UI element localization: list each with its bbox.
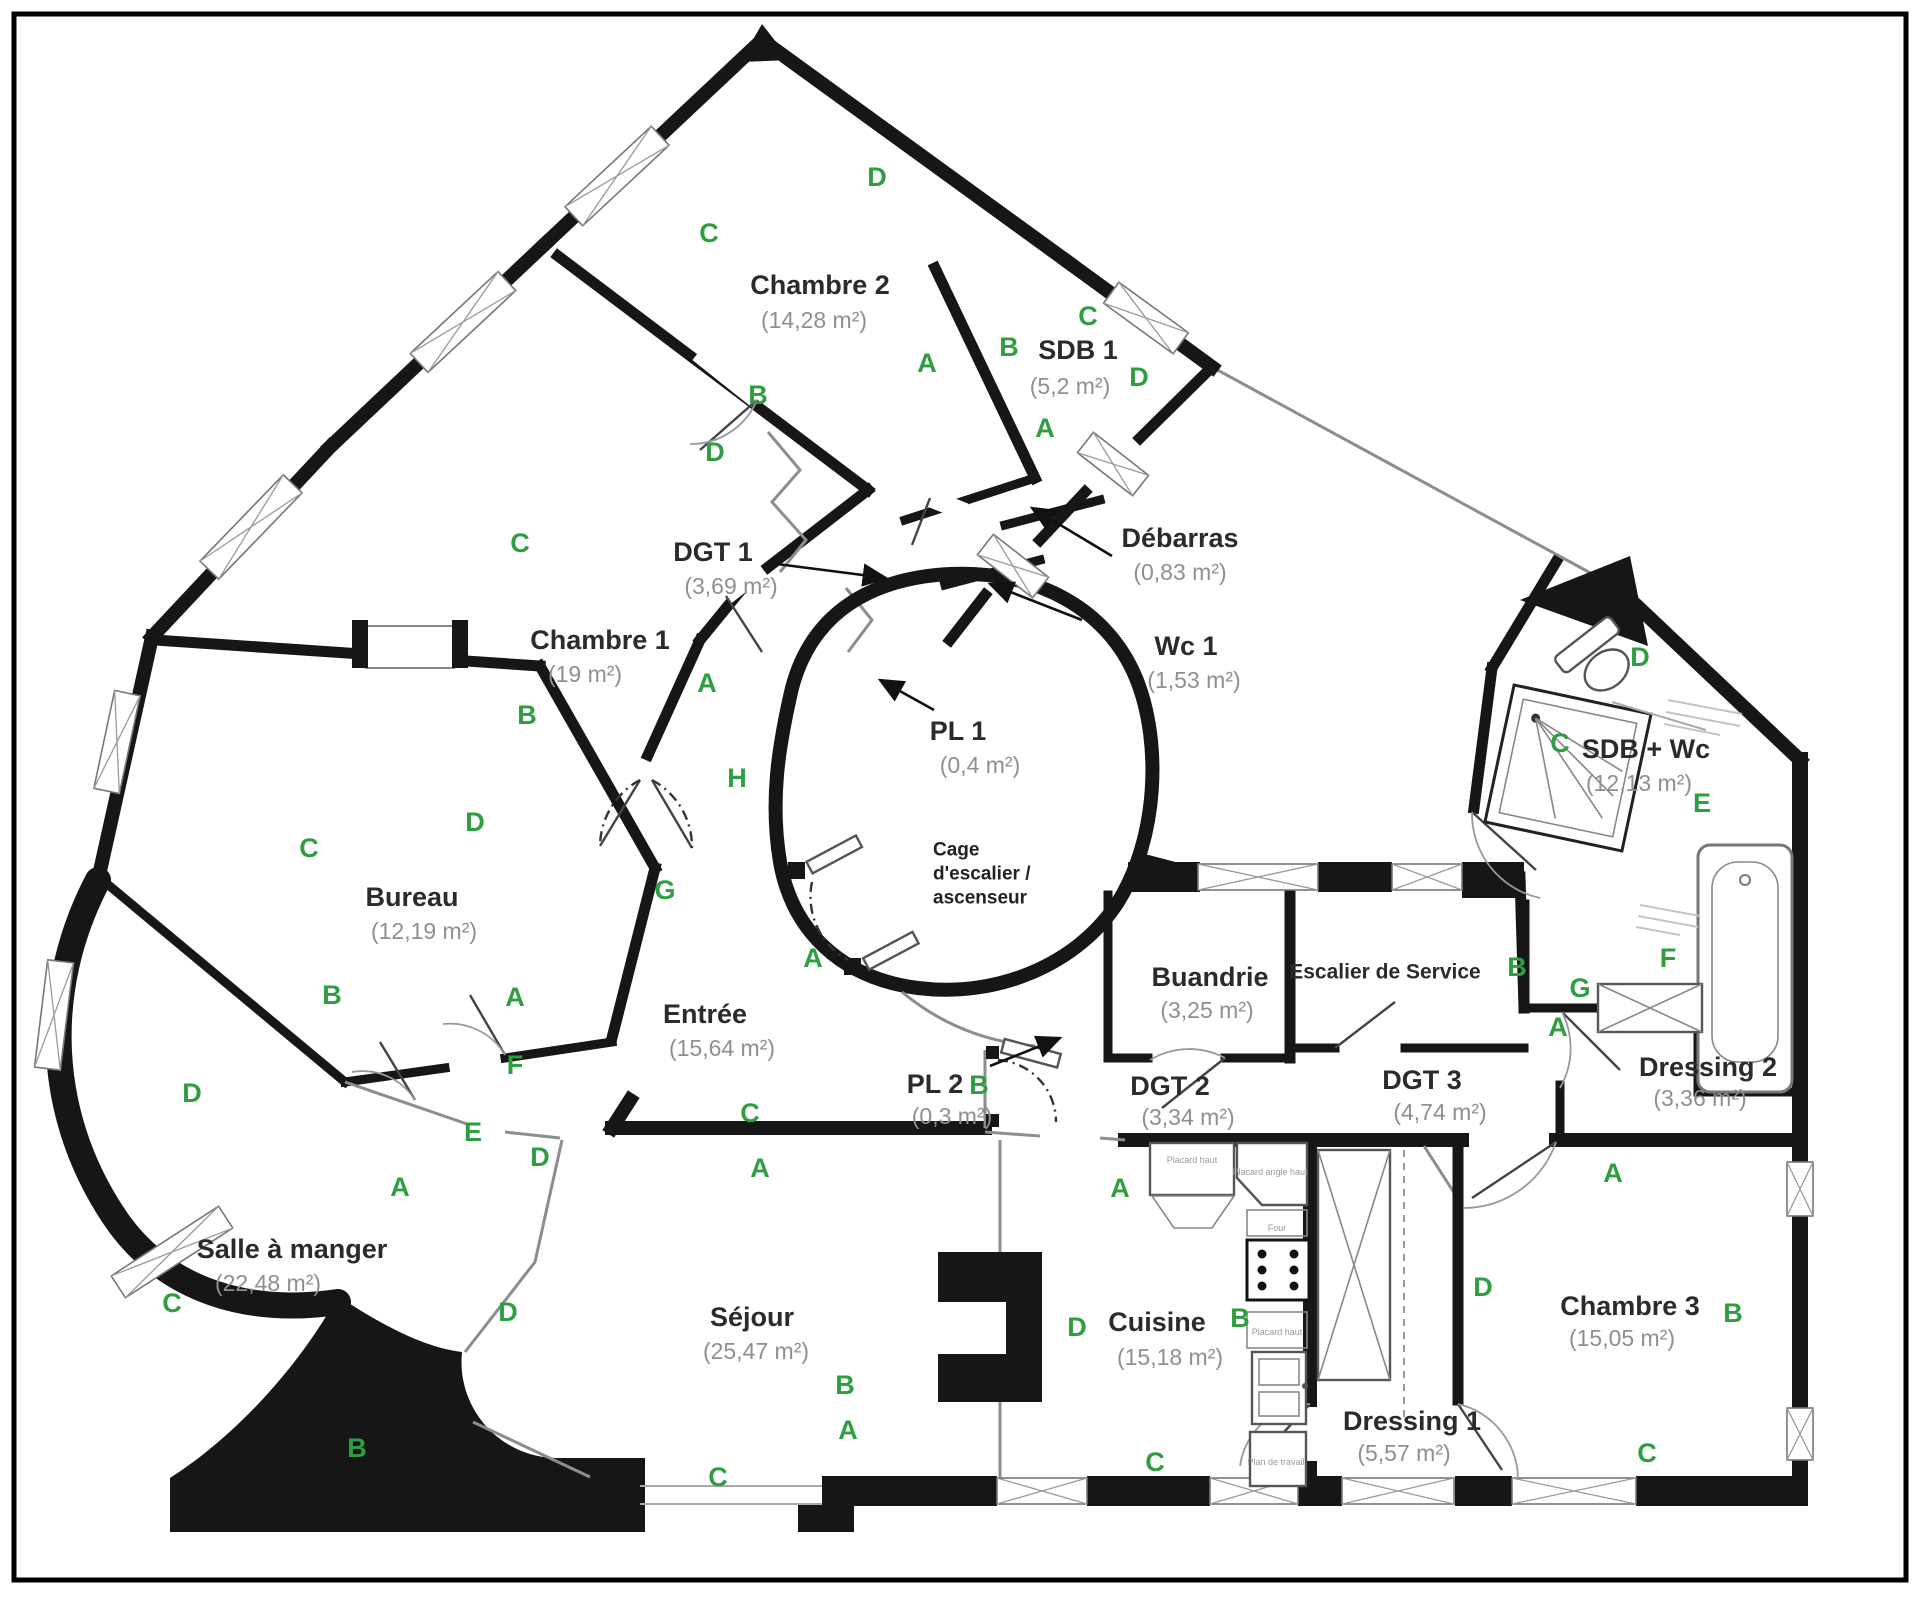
wall-letter-a-11: A (697, 668, 717, 698)
wall-letter-d-22: D (182, 1078, 202, 1108)
annotation-label-pl-2: PL 2 (907, 1069, 964, 1099)
wall-letter-b-3: B (748, 380, 768, 410)
room-label-sdb-1: SDB 1 (1038, 335, 1118, 365)
stairwell-label-line-0: Cage (933, 840, 979, 861)
wall-letter-e-20: E (464, 1117, 482, 1147)
wall-letter-d-37: D (1630, 642, 1650, 672)
wardrobe-icon (1598, 984, 1702, 1032)
wall-letter-b-32: B (969, 1070, 989, 1100)
wall-letter-d-28: D (498, 1297, 518, 1327)
room-label-dressing-2: Dressing 2 (1639, 1052, 1777, 1082)
wall-letter-d-21: D (530, 1142, 550, 1172)
fixture-label-3: Placard haut (1252, 1327, 1303, 1337)
room-area-dgt-2: (3,34 m²) (1141, 1104, 1234, 1130)
room-area-sejour: (25,47 m²) (703, 1338, 809, 1364)
wall-letter-d-0: D (867, 162, 887, 192)
wall-letter-b-29: B (835, 1370, 855, 1400)
wall-letter-c-24: C (162, 1288, 182, 1318)
annotation-label-debarras: Débarras (1121, 523, 1238, 553)
room-area-dgt-3: (4,74 m²) (1393, 1099, 1486, 1125)
annotation-area-debarras: (0,83 m²) (1133, 559, 1226, 585)
sink-icon (1252, 1352, 1308, 1424)
room-area-dressing-2: (3,36 m²) (1653, 1085, 1746, 1111)
room-area-sdb-wc: (12,13 m²) (1586, 770, 1692, 796)
room-area-cuisine: (15,18 m²) (1117, 1344, 1223, 1370)
room-label-sdb-wc: SDB + Wc (1582, 734, 1710, 764)
room-area-entree: (15,64 m²) (669, 1035, 775, 1061)
wall-letter-a-33: A (1110, 1173, 1130, 1203)
room-label-dressing-1: Dressing 1 (1343, 1406, 1481, 1436)
wall-letter-b-42: B (1507, 952, 1527, 982)
room-label-salle-a-manger: Salle à manger (197, 1234, 388, 1264)
annotation-label-pl-1: PL 1 (930, 716, 987, 746)
fixture-label-0: Placard haut (1167, 1155, 1218, 1165)
annotation-area-pl-1: (0,4 m²) (940, 752, 1021, 778)
wall-letter-g-41: G (1569, 973, 1590, 1003)
fixture-label-1: Placard angle haut (1232, 1167, 1308, 1177)
room-label-sejour: Séjour (710, 1302, 795, 1332)
annotation-label-wc-1: Wc 1 (1154, 631, 1217, 661)
wall-letter-a-2: A (917, 348, 937, 378)
stove-icon (1247, 1240, 1309, 1300)
room-label-cuisine: Cuisine (1108, 1307, 1206, 1337)
room-area-dressing-1: (5,57 m²) (1357, 1440, 1450, 1466)
wall-letter-g-15: G (654, 875, 675, 905)
wall-letter-a-27: A (750, 1153, 770, 1183)
wall-letter-a-19: A (803, 943, 823, 973)
wall-letter-b-25: B (347, 1433, 367, 1463)
room-label-escalier-de-service: Escalier de Service (1289, 961, 1480, 984)
room-label-dgt-3: DGT 3 (1382, 1065, 1462, 1095)
wall-letter-a-43: A (1548, 1012, 1568, 1042)
fixture-label-4: Plan de travail (1247, 1457, 1304, 1467)
wall-letter-c-9: C (510, 528, 530, 558)
wall-letter-c-5: C (1078, 301, 1098, 331)
wall-letter-f-18: F (507, 1050, 524, 1080)
window (1787, 1408, 1813, 1460)
annotation-area-dgt-1: (3,69 m²) (684, 573, 777, 599)
window (1392, 864, 1462, 890)
wall-letter-c-36: C (1145, 1447, 1165, 1477)
wall-letter-b-35: B (1230, 1303, 1250, 1333)
fixture-label-2: Four (1268, 1223, 1287, 1233)
annotation-area-wc-1: (1,53 m²) (1147, 667, 1240, 693)
stairwell-label-line-1: d'escalier / (933, 864, 1031, 885)
wall-letter-d-4: D (705, 437, 725, 467)
wall-letter-a-8: A (1035, 413, 1055, 443)
wall-letter-c-31: C (708, 1462, 728, 1492)
wall-letter-a-30: A (838, 1415, 858, 1445)
wall-letter-h-12: H (727, 763, 747, 793)
room-area-sdb-1: (5,2 m²) (1030, 373, 1111, 399)
room-label-chambre-3: Chambre 3 (1560, 1291, 1700, 1321)
room-area-chambre-2: (14,28 m²) (761, 307, 867, 333)
room-area-salle-a-manger: (22,48 m²) (215, 1270, 321, 1296)
wall-letter-c-47: C (1637, 1438, 1657, 1468)
room-label-chambre-1: Chambre 1 (530, 625, 670, 655)
wall-letter-d-34: D (1067, 1312, 1087, 1342)
window (997, 1478, 1087, 1504)
window (1198, 864, 1318, 890)
wall-letter-d-13: D (465, 807, 485, 837)
wall-letter-b-16: B (322, 980, 342, 1010)
window (1342, 1478, 1454, 1504)
floor-plan: Chambre 2(14,28 m²)SDB 1(5,2 m²)Chambre … (0, 0, 1920, 1594)
annotation-area-pl-2: (0,3 m²) (912, 1103, 993, 1129)
room-area-buandrie: (3,25 m²) (1160, 997, 1253, 1023)
annotation-label-dgt-1: DGT 1 (673, 537, 753, 567)
wall-letter-f-40: F (1660, 943, 1677, 973)
room-area-bureau: (12,19 m²) (371, 918, 477, 944)
wall-letter-a-17: A (505, 982, 525, 1012)
room-label-bureau: Bureau (365, 882, 458, 912)
wall-letter-d-45: D (1473, 1272, 1493, 1302)
wall-letter-a-23: A (390, 1172, 410, 1202)
wall-letter-c-1: C (699, 218, 719, 248)
window (1512, 1478, 1636, 1504)
wall-letter-e-39: E (1693, 788, 1711, 818)
wall-letter-c-26: C (740, 1098, 760, 1128)
room-label-entree: Entrée (663, 999, 747, 1029)
floor-plan-page: Chambre 2(14,28 m²)SDB 1(5,2 m²)Chambre … (0, 0, 1920, 1594)
room-label-dgt-2: DGT 2 (1130, 1071, 1210, 1101)
room-area-chambre-1: (19 m²) (548, 661, 622, 687)
dressing1-fixtures (1318, 1150, 1404, 1420)
wall-letter-a-44: A (1603, 1158, 1623, 1188)
wall-letter-c-14: C (299, 833, 319, 863)
shower-icon (1485, 685, 1651, 851)
window (1787, 1162, 1813, 1216)
wall-letter-c-38: C (1550, 728, 1570, 758)
room-label-chambre-2: Chambre 2 (750, 270, 890, 300)
wall-letter-d-7: D (1129, 362, 1149, 392)
room-label-buandrie: Buandrie (1151, 962, 1268, 992)
room-area-chambre-3: (15,05 m²) (1569, 1325, 1675, 1351)
wall-letter-b-46: B (1723, 1298, 1743, 1328)
wall-letter-b-6: B (999, 332, 1019, 362)
wall-letter-b-10: B (517, 700, 537, 730)
stairwell-label-line-2: ascenseur (933, 888, 1028, 909)
